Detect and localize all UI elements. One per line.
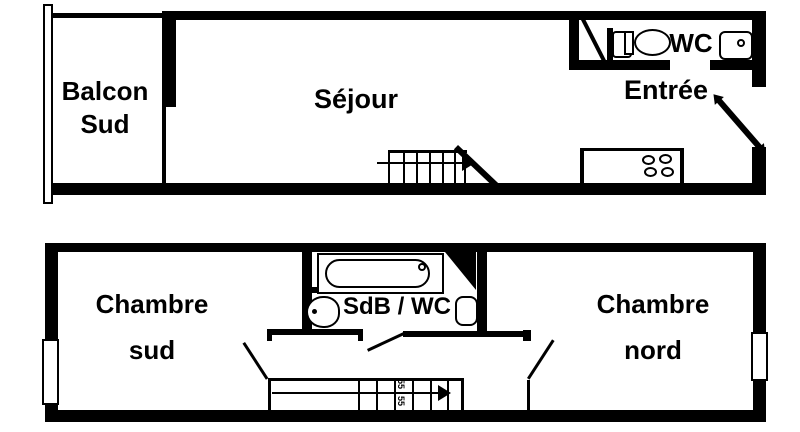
window-north [751, 332, 768, 381]
bedroom-north-label-line2: nord [558, 327, 748, 373]
wc-bottom-wall-left [569, 60, 670, 70]
upper-right-wall-top [752, 11, 766, 87]
bathroom-south-wall-left [268, 329, 363, 335]
bathroom-south-wall-right [403, 331, 525, 337]
lower-bottom-wall [45, 410, 766, 422]
bedroom-north-label-line1: Chambre [558, 281, 748, 327]
shower-corner [445, 252, 476, 290]
bedroom-south-label-line2: sud [57, 327, 247, 373]
washbasin-faucet [737, 39, 745, 47]
upper-top-wall [162, 11, 766, 20]
floor-plan: WC Entrée Séjour Balcon Sud [0, 0, 800, 432]
balcony-railing [43, 4, 53, 204]
cooktop-burner [659, 154, 672, 164]
stair-step [376, 381, 378, 410]
balcony-label-line1: Balcon [55, 75, 155, 108]
shower-door-swing [580, 17, 607, 64]
stair-step [442, 152, 444, 183]
stair-direction-line [272, 392, 440, 394]
stair-step [403, 152, 405, 183]
stair-break-line [454, 145, 499, 188]
wc-bottom-wall-right [710, 60, 752, 70]
bedroom-north-door-swing [527, 339, 555, 379]
stair-step [416, 152, 418, 183]
wall-end-cap [523, 330, 531, 341]
stair-step [358, 381, 360, 410]
cooktop-burner [661, 167, 674, 177]
bedroom-north-door-stub [527, 380, 530, 410]
stair-direction-arrow [438, 385, 451, 401]
upper-bottom-wall [52, 183, 766, 195]
wc-washbasin-right [719, 31, 753, 60]
wall-end-cap [267, 329, 272, 341]
kitchen-counter [580, 148, 684, 184]
living-room-label: Séjour [281, 86, 431, 113]
bathtub-basin [325, 259, 430, 288]
stair-step [412, 381, 414, 410]
balcony-label-line2: Sud [55, 108, 155, 141]
stair-step [454, 152, 456, 183]
cooktop-burner [642, 155, 655, 165]
bathroom-door-swing [367, 332, 405, 352]
lower-top-wall [45, 243, 766, 252]
wc-room-label: WC [663, 30, 719, 57]
bedroom-south-label-line1: Chambre [57, 281, 247, 327]
stair-step [430, 381, 432, 410]
wall-end-cap [358, 329, 363, 341]
balcony-glass-door [162, 107, 166, 183]
bathroom-label: SdB / WC [316, 294, 478, 320]
stair-step [429, 152, 431, 183]
entrance-door-swing [714, 96, 764, 152]
stair-mark: 55 [396, 377, 406, 391]
stair-direction-line [377, 162, 465, 164]
bedroom-south-label: Chambre sud [57, 281, 247, 373]
toilet-tank [624, 31, 634, 55]
bathtub-faucet [418, 263, 426, 271]
stair-mark: 55 [396, 394, 406, 408]
balcony-top-wall [52, 13, 162, 18]
cooktop-burner [644, 167, 657, 177]
bathroom-right-wall [477, 252, 487, 333]
balcony-divider-wall [162, 11, 176, 107]
balcony-label: Balcon Sud [55, 75, 155, 141]
bedroom-north-label: Chambre nord [558, 281, 748, 373]
